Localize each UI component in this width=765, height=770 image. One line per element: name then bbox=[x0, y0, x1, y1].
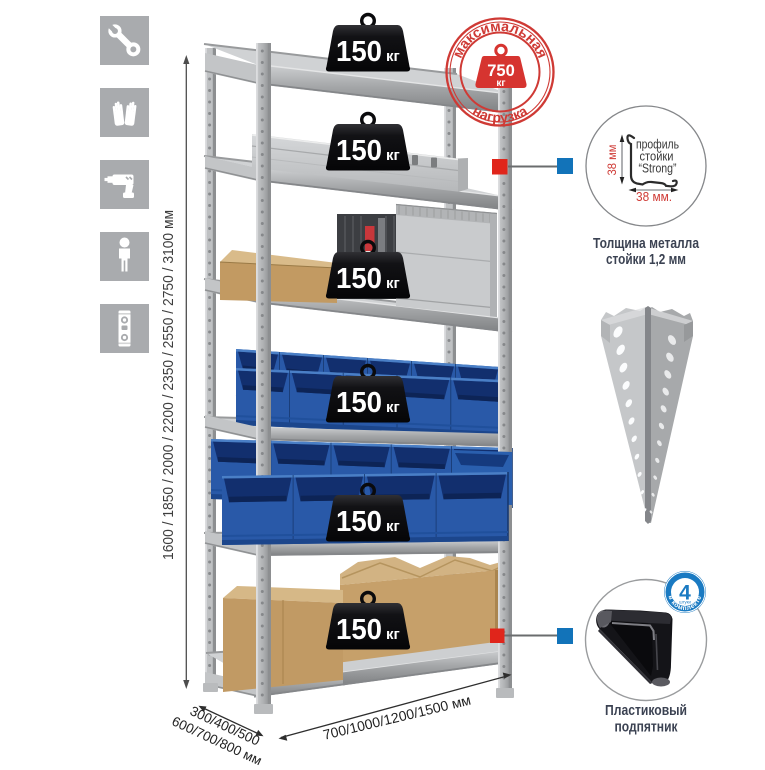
svg-text:38 мм: 38 мм bbox=[605, 145, 619, 176]
svg-text:150: 150 bbox=[336, 36, 382, 68]
svg-text:150: 150 bbox=[336, 263, 382, 295]
svg-text:38 мм.: 38 мм. bbox=[636, 190, 672, 204]
svg-text:кг: кг bbox=[386, 48, 400, 65]
svg-text:150: 150 bbox=[336, 135, 382, 167]
svg-text:штуки: штуки bbox=[679, 600, 691, 605]
svg-text:кг: кг bbox=[386, 147, 400, 164]
svg-text:1600 / 1850 / 2000 / 2200 / 23: 1600 / 1850 / 2000 / 2200 / 2350 / 2550 … bbox=[160, 210, 177, 560]
svg-text:Пластиковый: Пластиковый bbox=[605, 703, 687, 719]
svg-text:кг: кг bbox=[496, 78, 505, 89]
svg-text:Толщина металла: Толщина металла bbox=[593, 236, 700, 252]
svg-text:кг: кг bbox=[386, 275, 400, 292]
svg-text:подпятник: подпятник bbox=[615, 720, 679, 736]
svg-text:150: 150 bbox=[336, 506, 382, 538]
svg-text:“Strong”: “Strong” bbox=[639, 162, 677, 176]
svg-text:кг: кг bbox=[386, 518, 400, 535]
svg-text:150: 150 bbox=[336, 387, 382, 419]
svg-text:кг: кг bbox=[386, 626, 400, 643]
svg-text:кг: кг bbox=[386, 399, 400, 416]
svg-text:стойки 1,2 мм: стойки 1,2 мм bbox=[606, 252, 686, 268]
svg-text:150: 150 bbox=[336, 614, 382, 646]
